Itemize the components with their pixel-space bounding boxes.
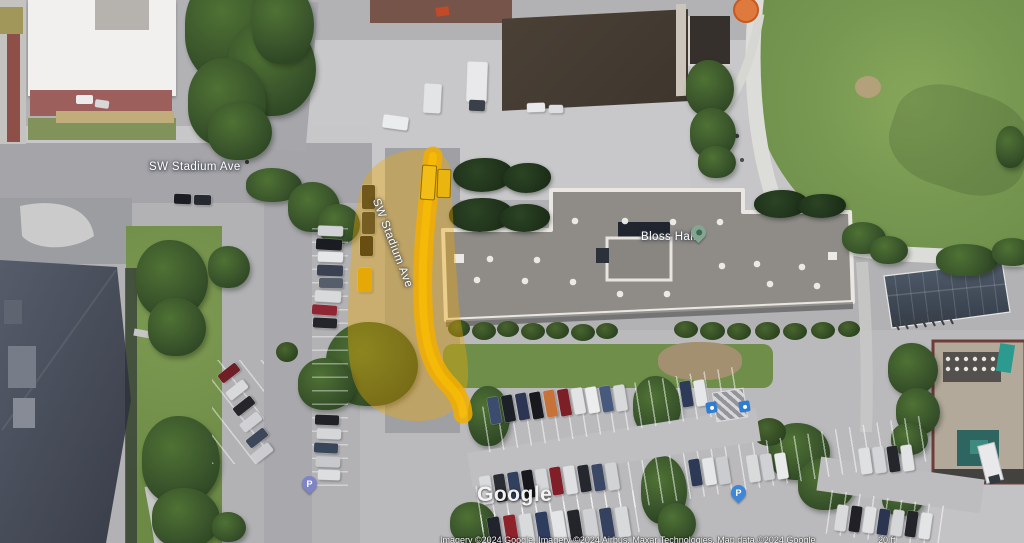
pavement-bottom-left	[0, 198, 132, 264]
school-bus	[420, 165, 437, 201]
building-dark-roof-parapet	[676, 4, 686, 97]
parking-pin-west[interactable]: P	[299, 473, 320, 494]
satellite-map-canvas[interactable]: SW Stadium Ave SW Stadium Ave Bloss Hall…	[0, 0, 1024, 543]
school-bus	[436, 169, 451, 198]
building-white-penthouse	[95, 0, 149, 30]
poi-pin-dot	[694, 228, 702, 236]
handicap-spot-icon	[738, 400, 751, 413]
parking-stripes	[312, 220, 348, 486]
rooftop-orange-item	[435, 6, 449, 17]
scale-label: 20 ft	[878, 535, 896, 543]
dirt-strip	[56, 111, 174, 123]
road-label-sw-stadium-ave: SW Stadium Ave	[149, 161, 241, 173]
car	[360, 236, 373, 256]
building-small-dark	[688, 16, 730, 66]
building-dark-roof	[502, 9, 688, 111]
parking-pin-letter: P	[731, 485, 746, 500]
tree-canopy-dark	[500, 204, 550, 232]
poi-label-bloss-hall[interactable]: Bloss Hall	[641, 231, 696, 243]
car	[358, 268, 372, 292]
lawn-dirt-patch	[855, 76, 881, 98]
parking-pin-east[interactable]: P	[728, 482, 749, 503]
track-vehicle	[76, 95, 93, 104]
red-strip-left	[7, 34, 20, 142]
car	[362, 212, 375, 234]
tan-roof-left	[0, 7, 23, 34]
parking-pin-letter: P	[302, 476, 317, 491]
parking-stripes	[212, 360, 264, 464]
road-sw-stadium	[0, 143, 372, 203]
grass-strip-left	[126, 226, 222, 543]
attribution-text: Imagery ©2024 Google, Imagery ©2024 Airb…	[440, 535, 815, 543]
handicap-spot-icon	[705, 401, 718, 414]
parking-aisle-left	[264, 198, 312, 543]
google-watermark[interactable]: Google	[477, 483, 552, 507]
